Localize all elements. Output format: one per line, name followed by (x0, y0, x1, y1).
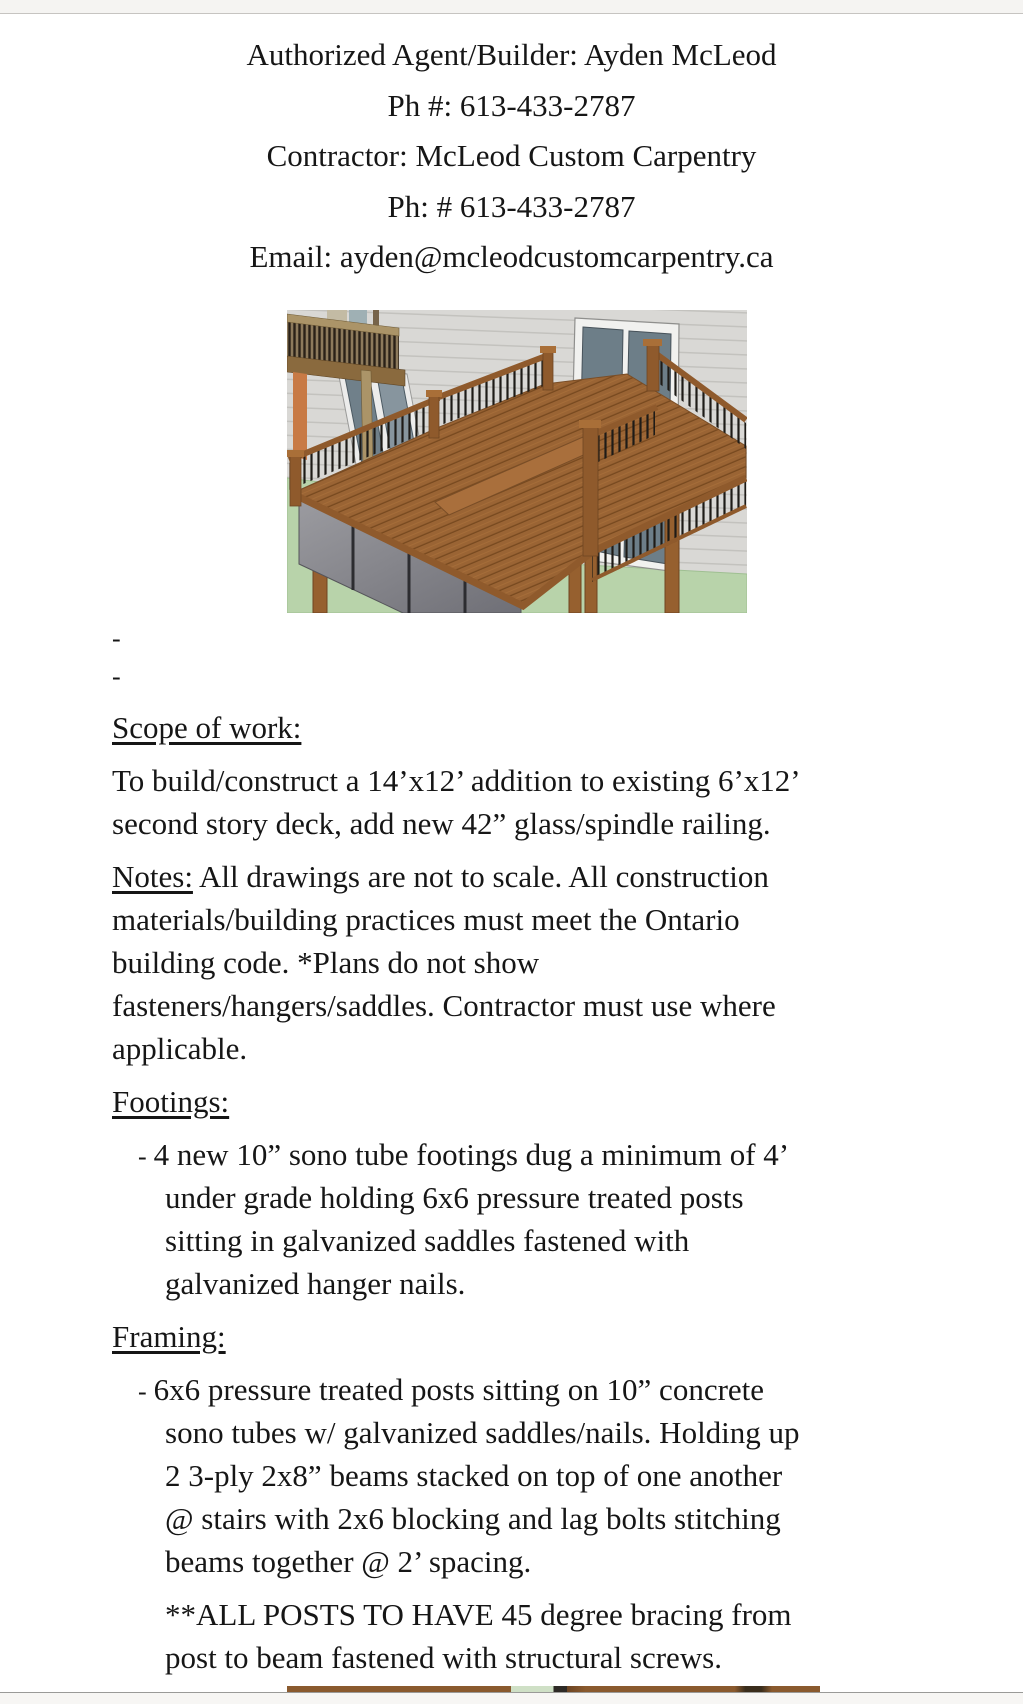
body-line: post to beam fastened with structural sc… (165, 1636, 942, 1679)
deck-rendering-image (287, 310, 747, 613)
body-line: under grade holding 6x6 pressure treated… (165, 1176, 942, 1219)
spacer-dash: - (112, 658, 942, 696)
body-line: 4 new 10” sono tube footings dug a minim… (154, 1137, 789, 1172)
bullet-line: -6x6 pressure treated posts sitting on 1… (112, 1368, 942, 1411)
body-line: sitting in galvanized saddles fastened w… (165, 1219, 942, 1262)
notes-text: All drawings are not to scale. All const… (193, 859, 769, 894)
body-line: 2 3-ply 2x8” beams stacked on top of one… (165, 1454, 942, 1497)
contractor-phone-line: Ph: # 613-433-2787 (0, 182, 1023, 233)
notes-label: Notes: (112, 859, 193, 894)
body-line: To build/construct a 14’x12’ addition to… (112, 759, 942, 802)
framing-item: -6x6 pressure treated posts sitting on 1… (112, 1368, 942, 1583)
scope-paragraph: To build/construct a 14’x12’ addition to… (112, 759, 942, 845)
body-line: building code. *Plans do not show (112, 941, 942, 984)
scope-heading-text: Scope of work: (112, 710, 301, 745)
notes-paragraph: Notes: All drawings are not to scale. Al… (112, 855, 942, 1070)
document-page: Authorized Agent/Builder: Ayden McLeod P… (0, 0, 1023, 1704)
footings-item: -4 new 10” sono tube footings dug a mini… (112, 1133, 942, 1305)
email-line: Email: ayden@mcleodcustomcarpentry.ca (0, 232, 1023, 283)
body-line: @ stairs with 2x6 blocking and lag bolts… (165, 1497, 942, 1540)
viewer-bottom-bar (0, 1692, 1023, 1704)
posts-bracing-note: **ALL POSTS TO HAVE 45 degree bracing fr… (112, 1593, 942, 1679)
bullet-dash: - (138, 1135, 147, 1178)
document-body: - - Scope of work: To build/construct a … (112, 620, 942, 1679)
footings-heading-text: Footings: (112, 1084, 229, 1119)
body-line: second story deck, add new 42” glass/spi… (112, 802, 942, 845)
body-line: beams together @ 2’ spacing. (165, 1540, 942, 1583)
contact-header: Authorized Agent/Builder: Ayden McLeod P… (0, 30, 1023, 283)
viewer-top-bar (0, 0, 1023, 14)
bullet-dash: - (138, 1370, 147, 1413)
contractor-line: Contractor: McLeod Custom Carpentry (0, 131, 1023, 182)
agent-builder-line: Authorized Agent/Builder: Ayden McLeod (0, 30, 1023, 81)
bullet-line: -4 new 10” sono tube footings dug a mini… (112, 1133, 942, 1176)
body-line: Notes: All drawings are not to scale. Al… (112, 855, 942, 898)
body-line: galvanized hanger nails. (165, 1262, 942, 1305)
body-line: sono tubes w/ galvanized saddles/nails. … (165, 1411, 942, 1454)
body-line: **ALL POSTS TO HAVE 45 degree bracing fr… (165, 1593, 942, 1636)
body-line: 6x6 pressure treated posts sitting on 10… (154, 1372, 764, 1407)
body-line: materials/building practices must meet t… (112, 898, 942, 941)
footings-heading: Footings: (112, 1080, 942, 1123)
body-line: fasteners/hangers/saddles. Contractor mu… (112, 984, 942, 1027)
spacer-dash: - (112, 620, 942, 658)
framing-heading-text: Framing: (112, 1319, 226, 1354)
framing-heading: Framing: (112, 1315, 942, 1358)
scope-heading: Scope of work: (112, 706, 942, 749)
agent-phone-line: Ph #: 613-433-2787 (0, 81, 1023, 132)
body-line: applicable. (112, 1027, 942, 1070)
